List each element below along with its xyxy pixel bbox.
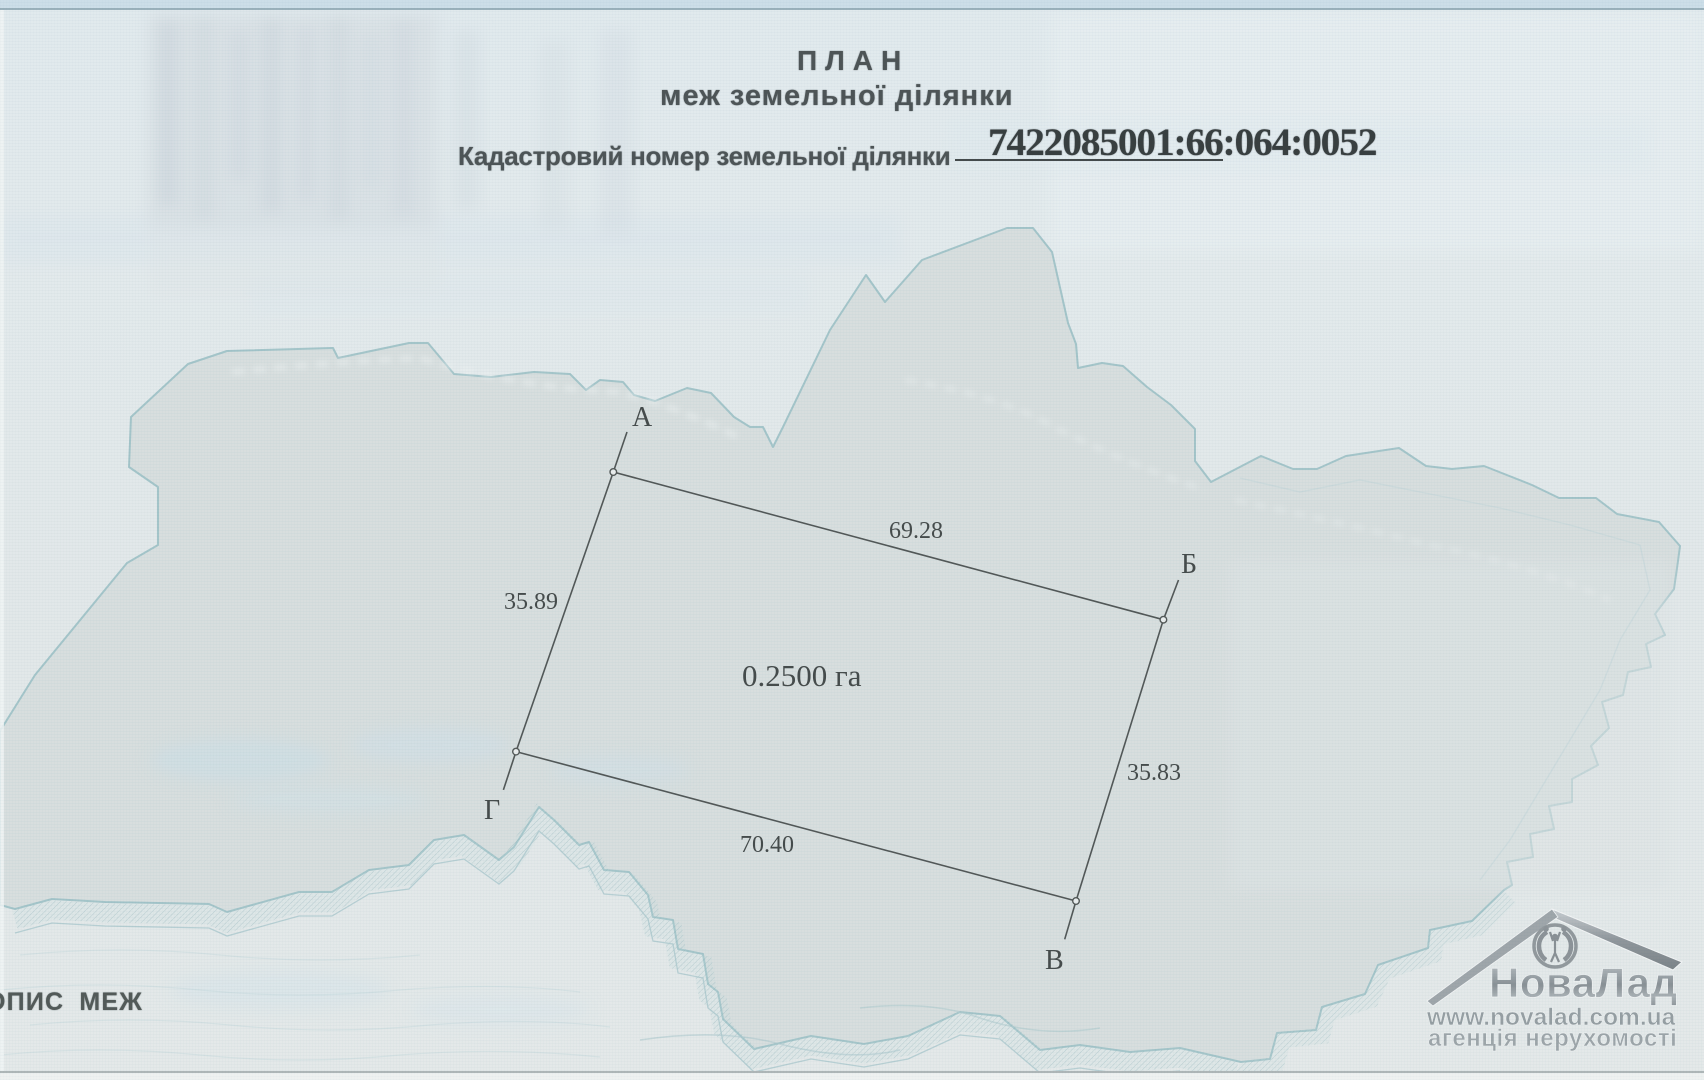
svg-text:В: В: [1045, 945, 1064, 976]
svg-text:НоваЛад: НоваЛад: [1489, 959, 1678, 1006]
svg-text:35.89: 35.89: [504, 589, 558, 615]
svg-text:69.28: 69.28: [889, 518, 943, 544]
svg-text:А: А: [632, 402, 653, 433]
svg-text:35.83: 35.83: [1127, 760, 1181, 786]
svg-text:Г: Г: [484, 795, 500, 826]
svg-text:70.40: 70.40: [740, 832, 794, 858]
svg-text:0.2500 га: 0.2500 га: [742, 658, 862, 693]
svg-text:агенція нерухомості: агенція нерухомості: [1428, 1025, 1677, 1052]
svg-text:Б: Б: [1181, 549, 1197, 580]
